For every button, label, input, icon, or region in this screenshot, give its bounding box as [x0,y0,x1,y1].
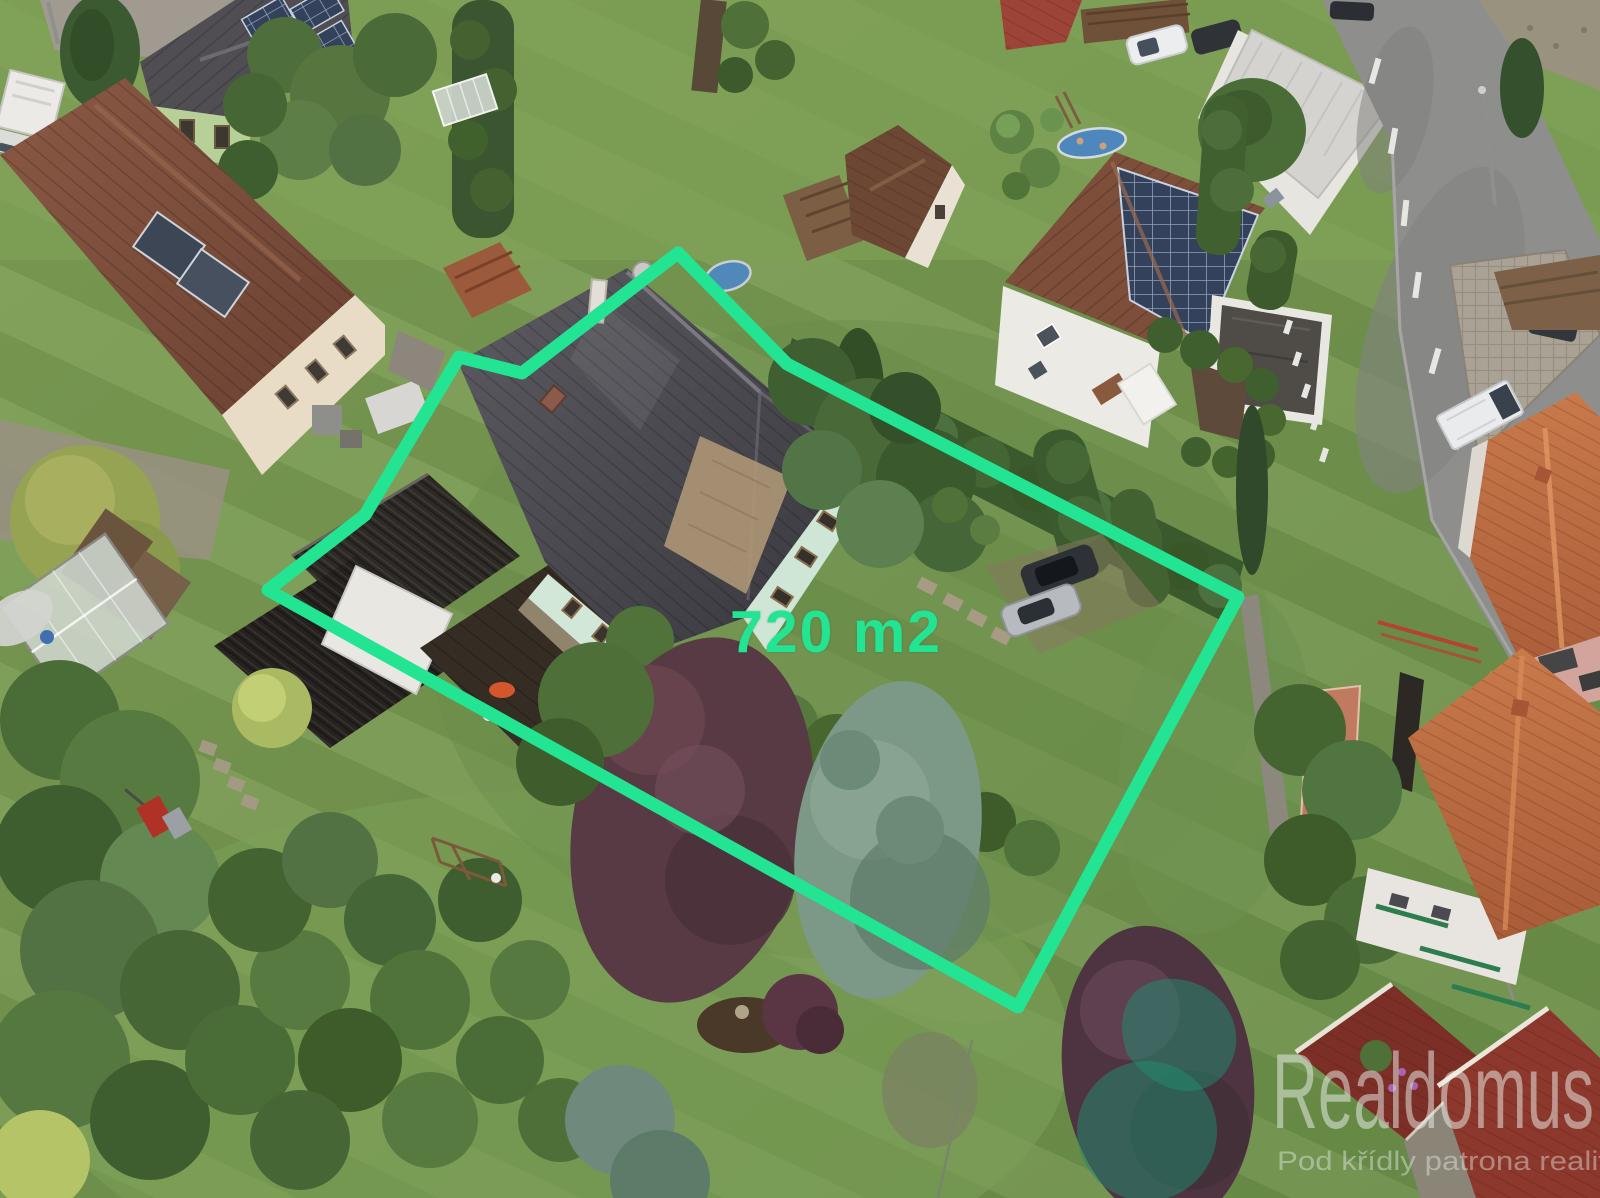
watermark: Realdomus Pod křídly patrona realit [0,0,1600,1198]
watermark-tagline: Pod křídly patrona realit [1277,1146,1600,1176]
aerial-photo: 720 m2 Realdomus Pod křídly patrona real… [0,0,1600,1198]
leaf-logo-icon [1077,979,1236,1198]
watermark-brand: Realdomus [1272,1031,1594,1151]
